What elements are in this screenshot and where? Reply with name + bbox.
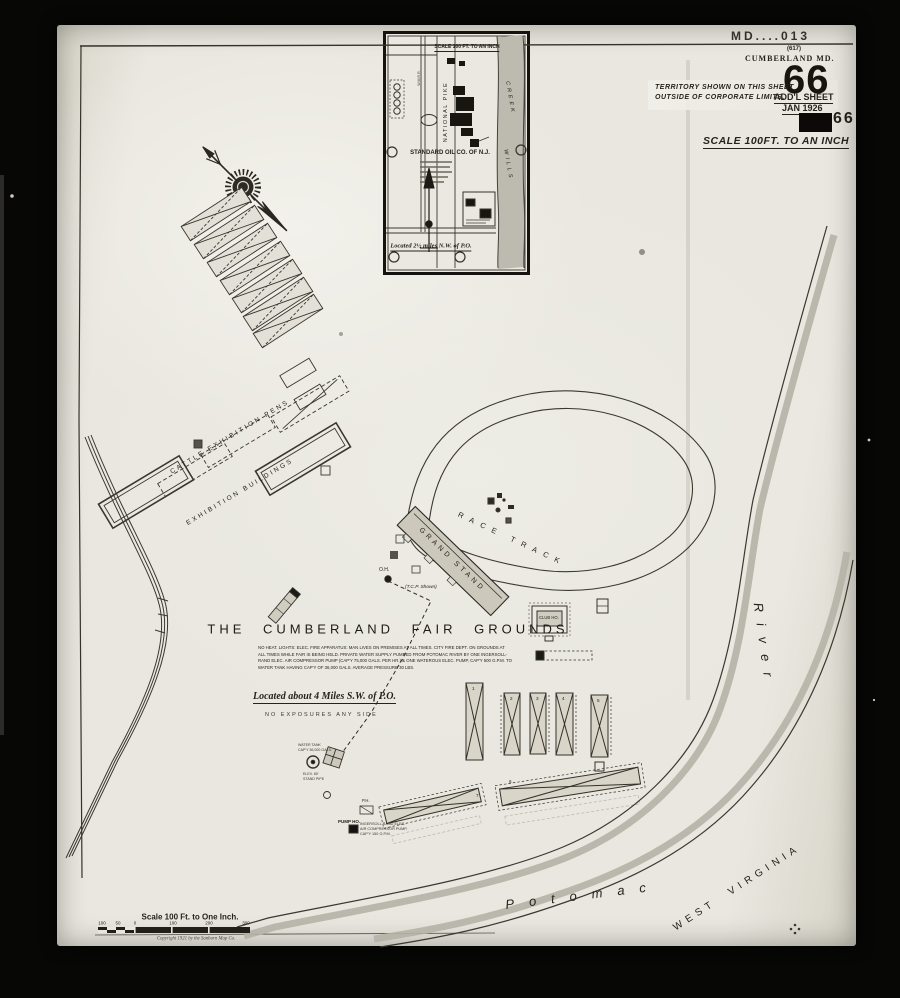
- shed-number-1: 1: [472, 686, 475, 691]
- notes-block: NO HEAT. LIGHTS: ELEC. FIRE APPARATUS: M…: [258, 645, 530, 671]
- scale-tick-200: 200: [205, 921, 213, 926]
- territory-note-line2: OUTSIDE OF CORPORATE LIMITS.: [655, 94, 785, 101]
- inset-located-note: Located 2½ miles N.W. of P.O.: [390, 243, 471, 252]
- scale-tick-100r: 100: [169, 921, 177, 926]
- inset-scale-label: SCALE 100 FT. TO AN INCH: [434, 44, 499, 52]
- tcp-note: (T.C.P. Shown): [405, 585, 437, 590]
- water-tank-label-4: STAND PIPE: [303, 777, 324, 781]
- shed-number-2: 2: [510, 696, 513, 701]
- inset-street-label: NATIONAL PIKE: [443, 82, 449, 142]
- pump-note-2: AIR COMPRESSOR PUMP,: [360, 827, 407, 831]
- pump-house-label: PUMP HO.: [338, 819, 360, 824]
- shed-number-5: 5: [597, 698, 600, 703]
- inset-company-label: STANDARD OIL CO. OF N.J.: [410, 150, 490, 156]
- pump-note-3: CAP'Y 150 G.P.M.: [360, 832, 391, 836]
- scale-tick-100l: 100: [98, 921, 106, 926]
- club-house-label: CLUB HO.: [539, 615, 559, 620]
- index-tab: [799, 113, 832, 132]
- no-exposures-note: NO EXPOSURES ANY SIDE: [265, 712, 378, 718]
- notes-line-4: WATER TANK HAVING CAP'Y OF 36,000 GALS. …: [258, 665, 530, 672]
- shed-number-7: 7: [476, 793, 479, 798]
- scale-heading: SCALE 100FT. TO AN INCH: [703, 135, 849, 149]
- scanned-map-photo: MD....013 (617) CUMBERLAND MD. 66 ADD'L …: [0, 0, 900, 998]
- oh-label: O.H.: [379, 567, 389, 573]
- water-tank-label-2: CAP'Y 36,000 GALS.: [298, 748, 332, 752]
- scale-tick-300: 300: [242, 921, 250, 926]
- catalog-stamp: MD....013: [731, 29, 810, 43]
- water-tank-label-1: WATER TANK: [298, 743, 321, 747]
- scale-tick-0: 0: [134, 921, 137, 926]
- inset-railroad-label: W.M.R.R.: [417, 70, 421, 85]
- notes-line-3: RAND ELEC. AIR COMPRESSOR PUMP (CAP'Y 75…: [258, 658, 530, 665]
- scale-bar-title: Scale 100 Ft. to One Inch.: [142, 913, 239, 922]
- photo-edge-sliver: [0, 175, 4, 735]
- territory-note-line1: TERRITORY SHOWN ON THIS SHEET: [655, 84, 794, 91]
- corner-small-index: (617): [787, 46, 801, 52]
- scale-tick-50: 50: [115, 921, 120, 926]
- notes-line-1: NO HEAT. LIGHTS: ELEC. FIRE APPARATUS: M…: [258, 645, 530, 652]
- water-tank-label-3: ELEV. 80': [303, 772, 319, 776]
- ph-label: P.H.: [362, 798, 370, 803]
- fairgrounds-title: THE CUMBERLAND FAIR GROUNDS: [207, 622, 568, 637]
- shed-number-4: 4: [562, 696, 565, 701]
- located-note: Located about 4 Miles S.W. of P.O.: [253, 691, 396, 704]
- ghost-sheet-number: 66: [833, 110, 855, 128]
- shed-number-6: 6: [509, 779, 512, 784]
- copyright-note: Copyright 1921 by the Sanborn Map Co.: [157, 937, 235, 942]
- shed-number-3: 3: [536, 696, 539, 701]
- pump-note-1: INGERSOLL RAND ELEC.: [360, 822, 405, 826]
